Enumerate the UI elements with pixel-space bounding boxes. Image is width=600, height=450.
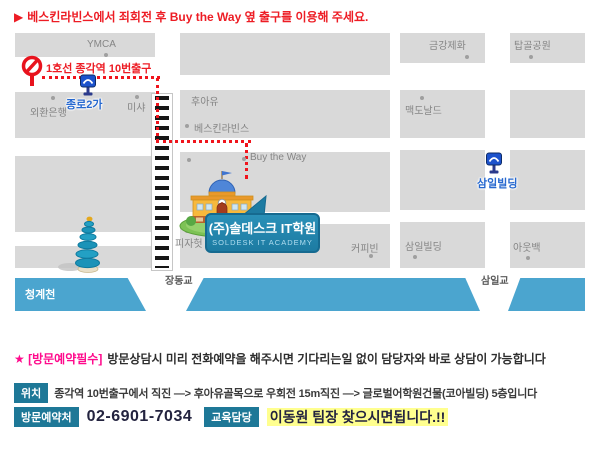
reservation-required-label: ★ [방문예약필수] [14,352,102,366]
map-block-r3-c4 [510,150,585,210]
route-dotted-line [156,140,251,143]
subway-station-icon [485,152,503,175]
route-dotted-line [42,76,160,79]
crosswalk [151,93,173,271]
location-dot [465,55,469,59]
map-label-tapgol: 탑골공원 [514,37,551,52]
location-dot [185,124,189,128]
exit-10-label: 1호선 종각역 10번출구 [46,60,151,76]
river-segment [508,278,585,311]
contact-person: 이동원 팀장 찾으시면됩니다.!! [267,408,449,426]
contact-line: 방문예약처02-6901-7034교육담당이동원 팀장 찾으시면됩니다.!! [14,407,448,427]
map-label-mcdonalds: 맥도날드 [405,102,442,117]
map-label-coffeebean: 커피빈 [351,240,379,255]
phone-badge: 방문예약처 [14,407,79,427]
location-dot [529,55,533,59]
map-label-misha: 미샤 [127,99,145,114]
subway-station-icon [79,74,97,97]
map-label-samil-building: 삼일빌딩 [405,238,442,253]
map-flyer: ▶베스킨라빈스에서 죄회전 후 Buy the Way 옆 출구를 이용해 주세… [0,0,600,450]
map-label-buytheway: Buy the Way [250,152,306,163]
arrow-icon: ▶ [14,10,23,24]
location-dot [420,96,424,100]
route-dotted-line [156,78,159,142]
bridge-label-samilgyo: 삼일교 [481,272,509,287]
river-name-label: 청계천 [25,286,55,302]
location-dot [413,255,417,259]
map-block-top-center [180,33,390,75]
samil-station-label: 삼일빌딩 [477,175,517,191]
subway-exit-marker-icon [20,55,44,89]
location-dot [104,53,108,57]
academy-bubble: (주)솔데스크 IT학원 SOLDESK IT ACADEMY [205,213,320,253]
map-block-r2-right [510,90,585,138]
map-label-outback: 아웃백 [513,239,541,254]
top-notice-text: 베스킨라빈스에서 죄회전 후 Buy the Way 옆 출구를 이용해 주세요… [27,10,368,24]
location-dot [242,157,246,161]
map-label-oehwan: 외환은행 [30,104,67,119]
bridge-label-jangdong: 장동교 [165,272,193,287]
spring-sculpture-illustration [58,214,110,276]
location-dot [369,254,373,258]
location-dot [526,256,530,260]
jongno2ga-label: 종로2가 [66,96,102,112]
map-label-whoau: 후아유 [191,93,219,108]
academy-name-en: SOLDESK IT ACADEMY [207,238,318,247]
location-dot [51,96,55,100]
top-notice: ▶베스킨라빈스에서 죄회전 후 Buy the Way 옆 출구를 이용해 주세… [14,8,368,25]
phone-number: 02-6901-7034 [87,408,193,425]
academy-name: (주)솔데스크 IT학원 [207,218,318,237]
reservation-notice-text: 방문상담시 미리 전화예약을 해주시면 기다리는일 없이 담당자와 바로 상담이… [107,352,546,366]
reservation-notice: ★ [방문예약필수]방문상담시 미리 전화예약을 해주시면 기다리는일 없이 담… [14,350,546,367]
map-label-baskin: 베스킨라빈스 [194,120,249,135]
map-label-ymca: YMCA [87,39,116,50]
map-block-r3-c3 [400,150,485,210]
map-label-geumgang: 금강제화 [429,37,466,52]
location-line: 위치종각역 10번출구에서 직진 —> 후아유골목으로 우회전 15m직진 —>… [14,383,537,403]
location-directions: 종각역 10번출구에서 직진 —> 후아유골목으로 우회전 15m직진 —> 글… [54,388,537,400]
location-dot [187,158,191,162]
location-badge: 위치 [14,383,48,403]
river-segment [186,278,480,311]
map-block-ymca [15,33,155,57]
edu-badge: 교육담당 [204,407,258,427]
location-dot [135,95,139,99]
